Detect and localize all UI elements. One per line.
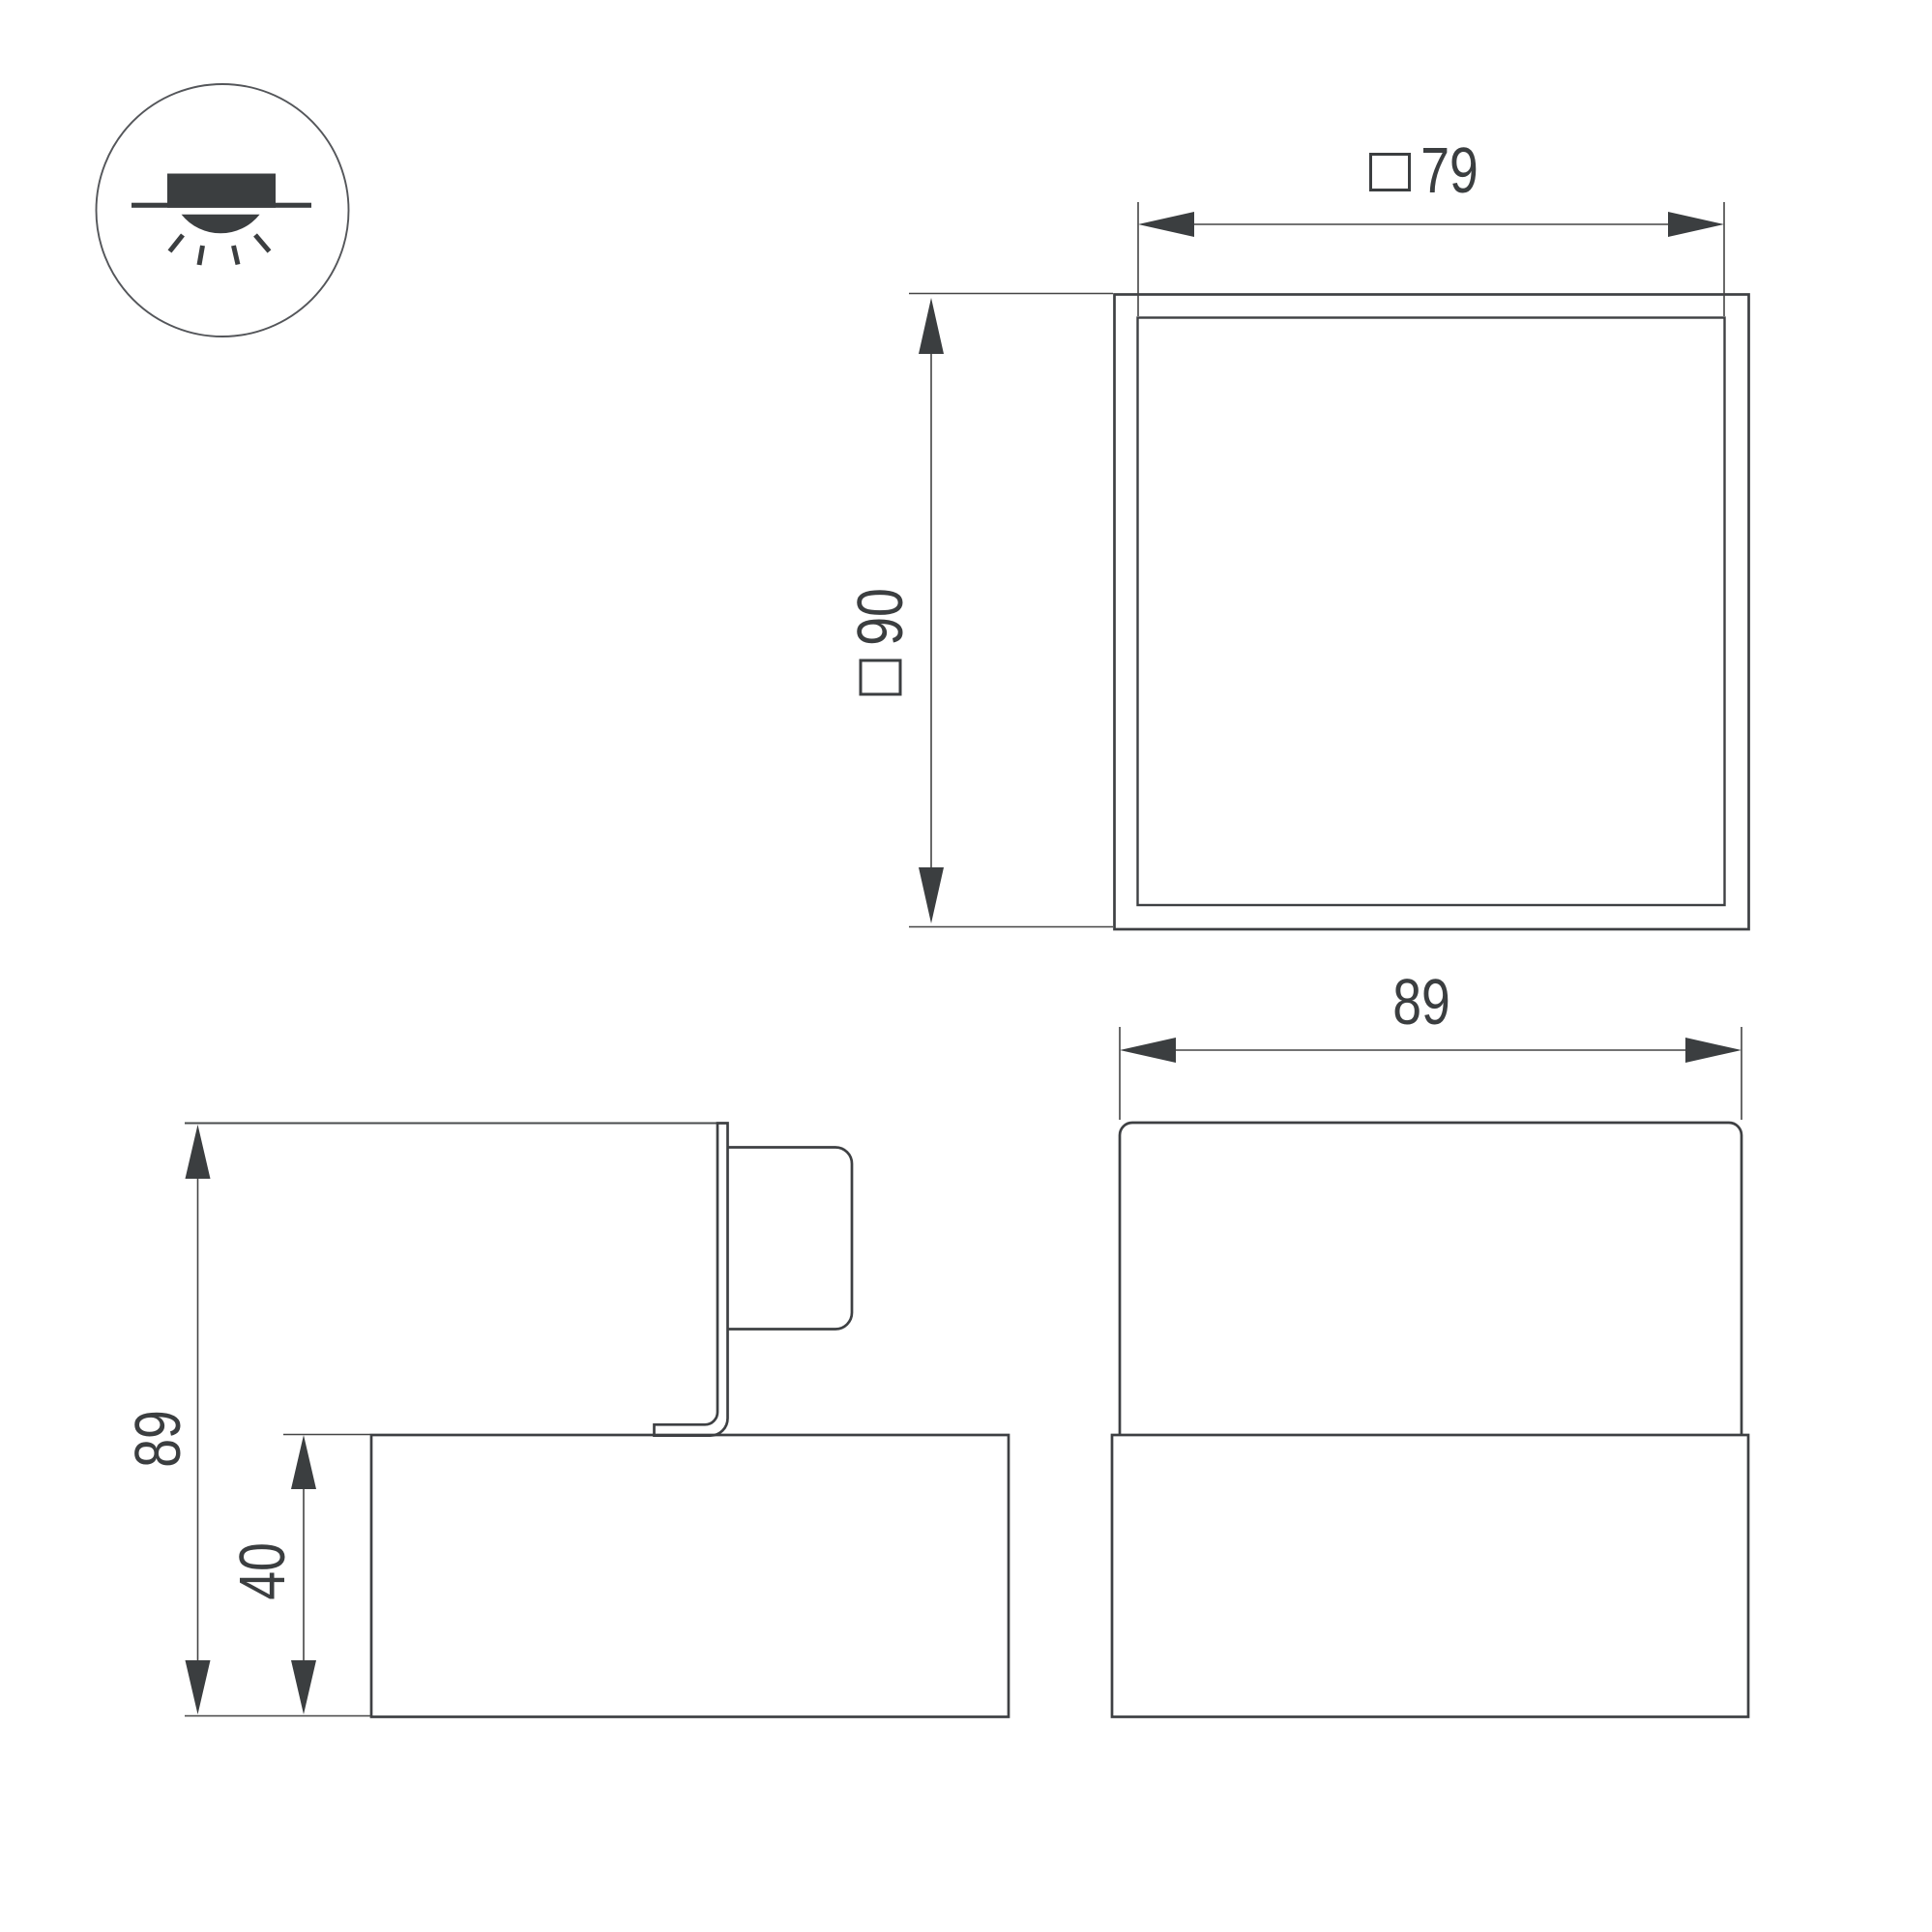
svg-text:79: 79 (1420, 133, 1478, 206)
svg-text:89: 89 (1392, 965, 1450, 1038)
svg-text:89: 89 (121, 1410, 193, 1468)
svg-text:40: 40 (225, 1542, 298, 1600)
svg-text:90: 90 (843, 588, 916, 646)
